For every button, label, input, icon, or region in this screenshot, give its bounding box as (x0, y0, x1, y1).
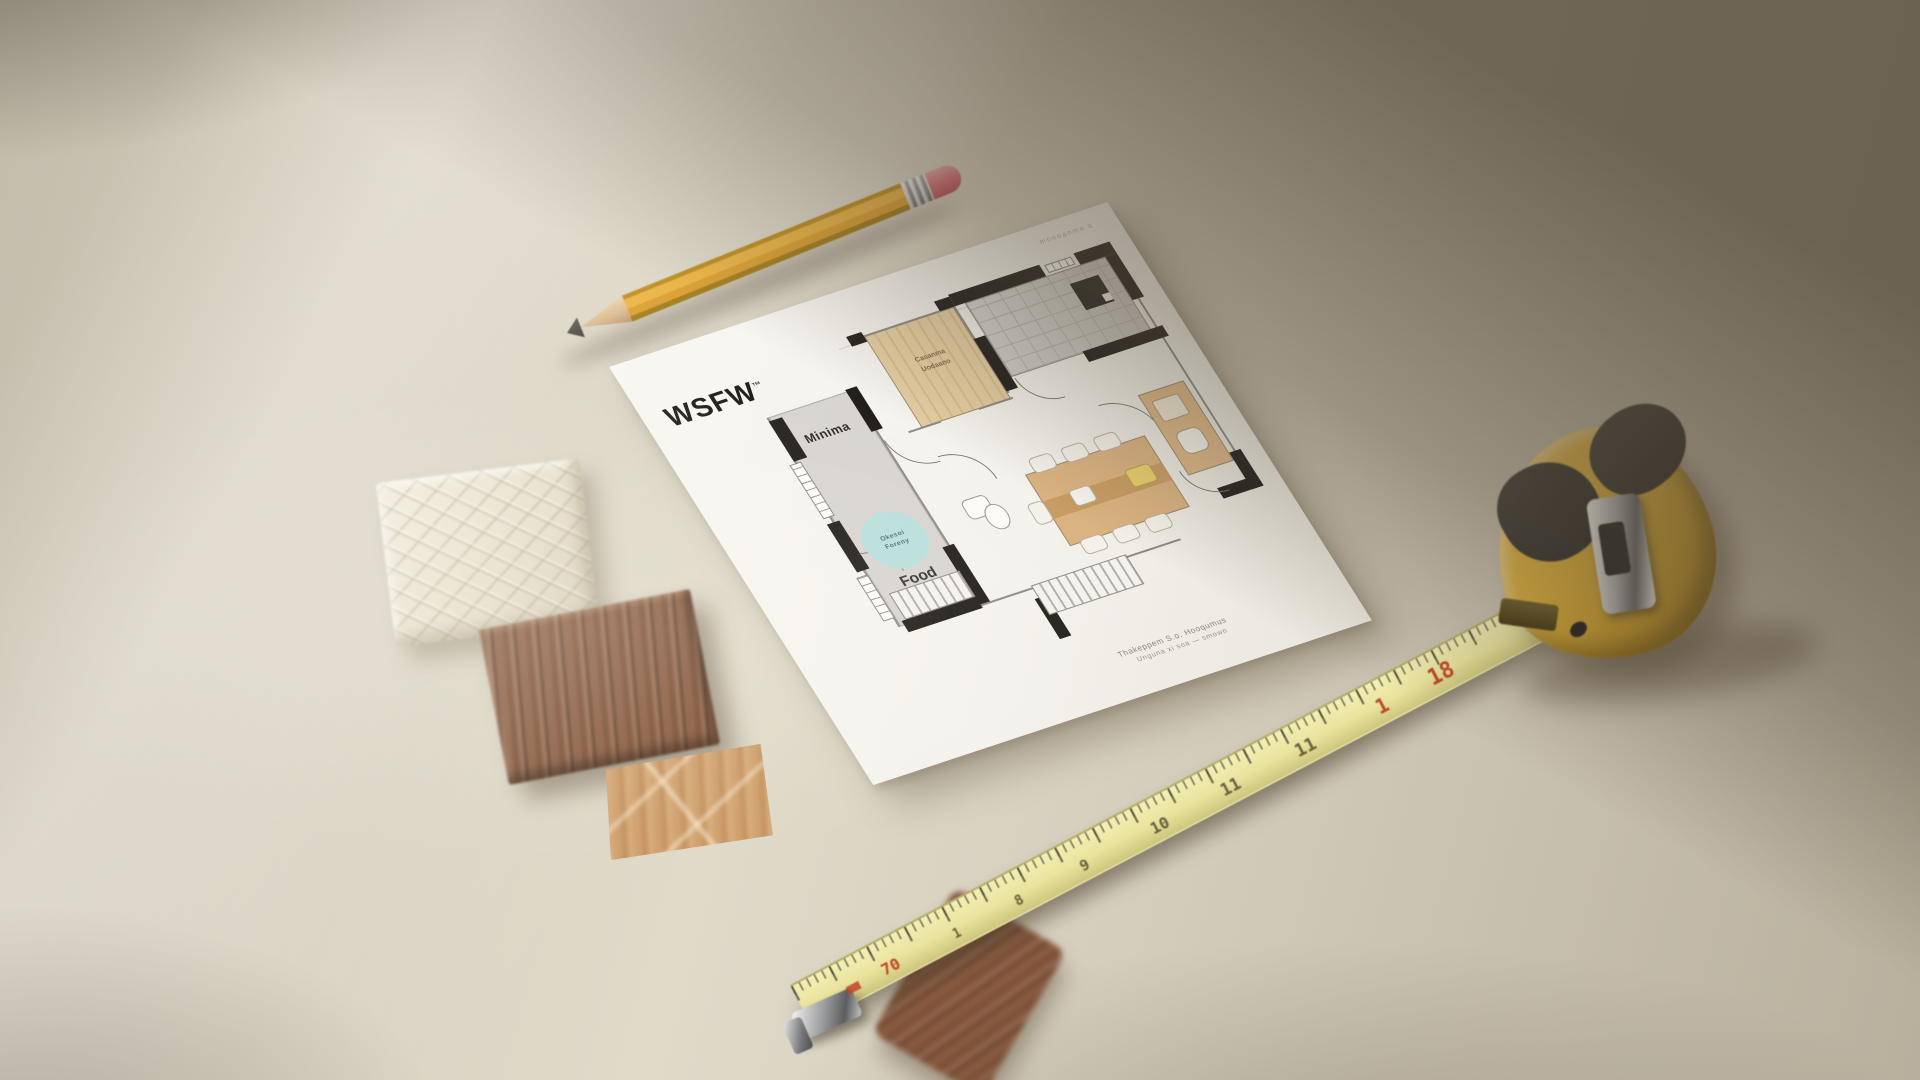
tape-number: 18 (1424, 657, 1459, 691)
tape-number: 70 (878, 954, 904, 980)
deck-stripes-symbol (1031, 554, 1145, 615)
tape-number: 10 (1147, 812, 1173, 838)
tape-number: 1 (950, 925, 964, 942)
tape-number: 11 (1217, 774, 1244, 801)
tape-number: 1 (1371, 692, 1393, 719)
tape-number: 8 (1012, 892, 1027, 910)
photo-scene: WSFW™ monoanma a (0, 0, 1920, 1080)
tape-number: 11 (1291, 733, 1320, 762)
tape-number: 9 (1076, 855, 1092, 875)
tape-hook (791, 987, 863, 1041)
pencil-graphite-tip (562, 314, 586, 346)
door-arc (938, 444, 998, 491)
